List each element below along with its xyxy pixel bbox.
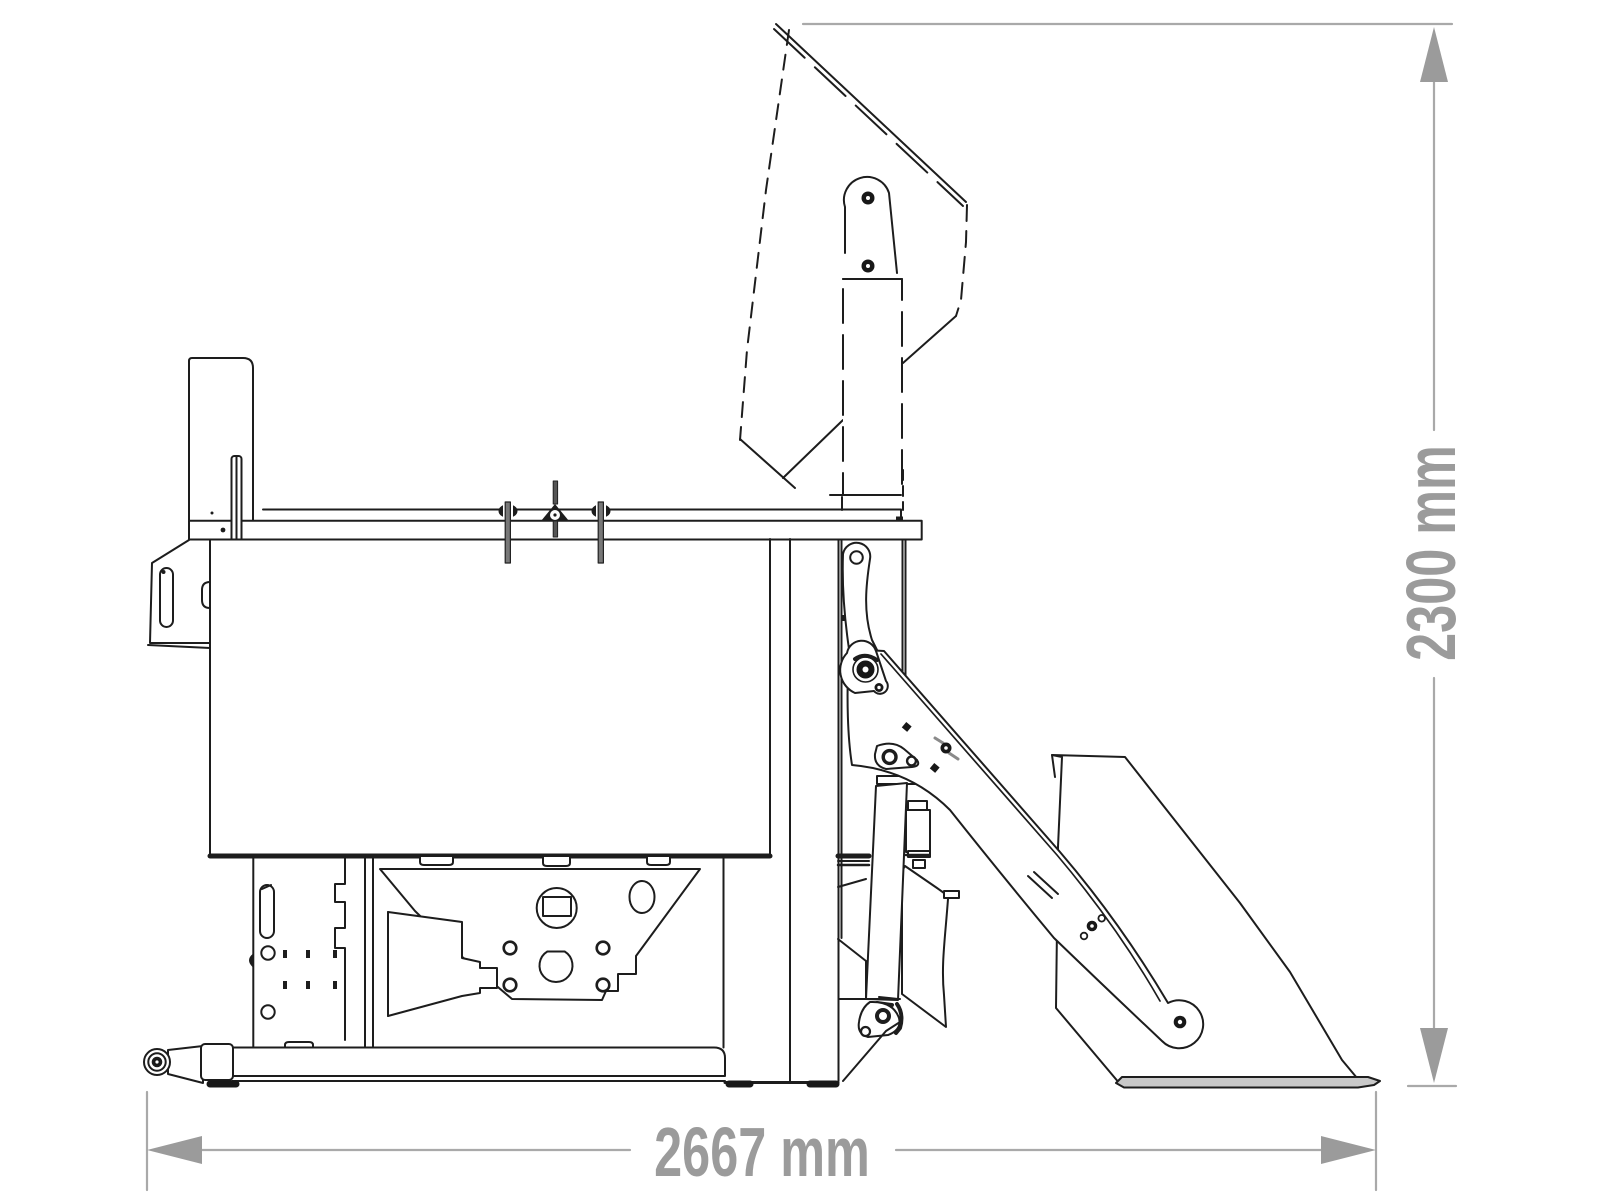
svg-text:2667 mm: 2667 mm [654, 1113, 870, 1191]
svg-text:2300 mm: 2300 mm [1392, 445, 1470, 661]
